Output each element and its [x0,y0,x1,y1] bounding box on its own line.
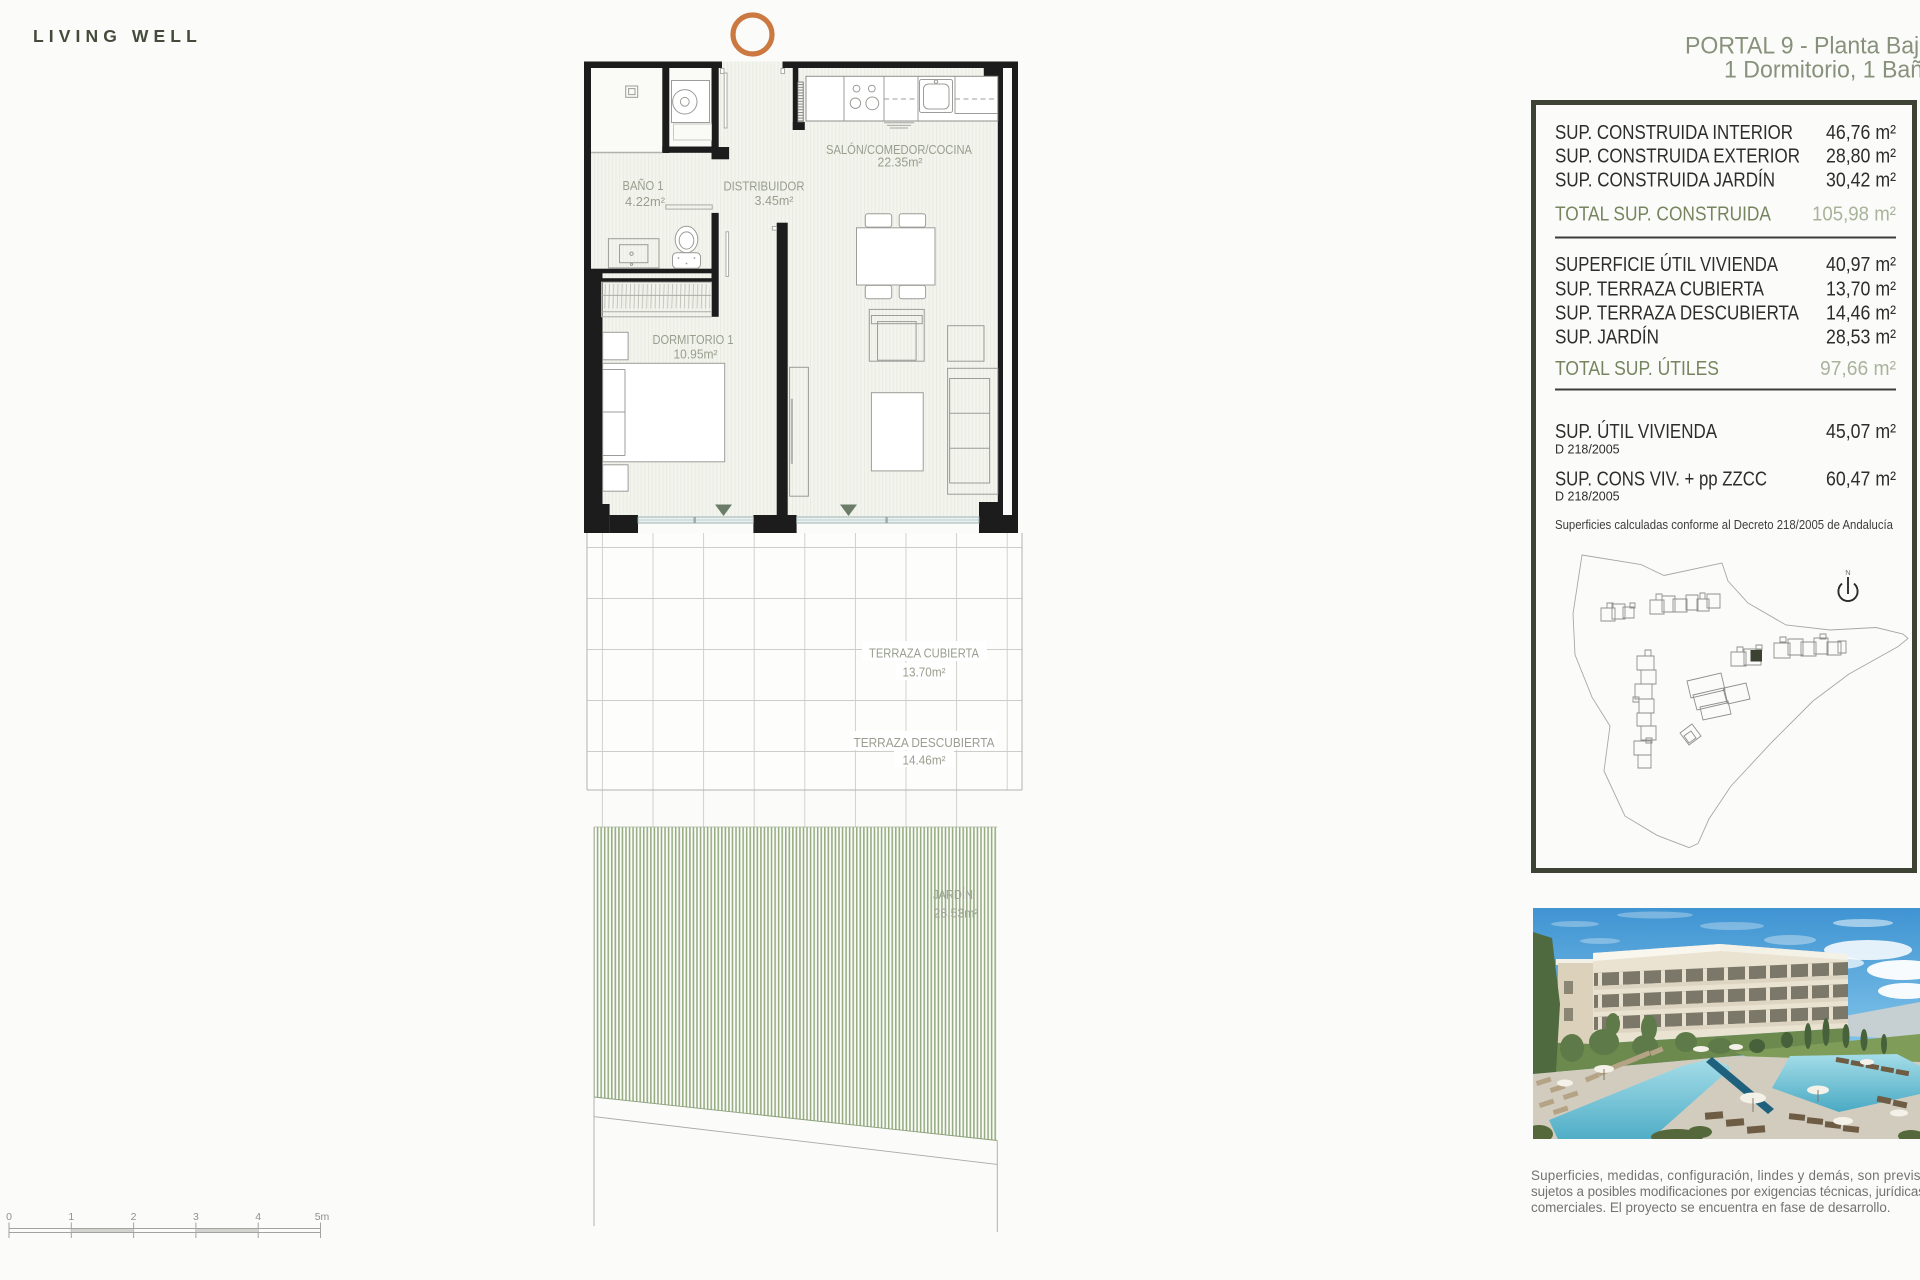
svg-text:22.35m²: 22.35m² [878,156,923,170]
svg-text:5m: 5m [315,1211,330,1223]
svg-text:3: 3 [193,1211,199,1223]
svg-text:SUP. CONSTRUIDA INTERIOR: SUP. CONSTRUIDA INTERIOR [1555,121,1793,144]
svg-text:SUPERFICIE ÚTIL VIVIENDA: SUPERFICIE ÚTIL VIVIENDA [1555,253,1778,276]
svg-text:JARDÍN: JARDÍN [933,887,973,902]
svg-text:SUP. ÚTIL VIVIENDA: SUP. ÚTIL VIVIENDA [1555,420,1717,443]
svg-text:14,46 m²: 14,46 m² [1826,302,1896,325]
svg-text:sujetos a posibles modificacio: sujetos a posibles modificaciones por ex… [1531,1184,1920,1199]
svg-text:0: 0 [6,1211,12,1223]
svg-text:SUP. TERRAZA CUBIERTA: SUP. TERRAZA CUBIERTA [1555,278,1764,301]
svg-text:30,42 m²: 30,42 m² [1826,168,1896,191]
svg-text:TERRAZA DESCUBIERTA: TERRAZA DESCUBIERTA [854,736,996,750]
svg-text:Superficies, medidas, configur: Superficies, medidas, configuración, lin… [1531,1168,1920,1183]
svg-text:D 218/2005: D 218/2005 [1555,490,1620,504]
svg-text:45,07 m²: 45,07 m² [1826,420,1896,443]
svg-text:105,98 m²: 105,98 m² [1812,203,1896,226]
svg-text:D 218/2005: D 218/2005 [1555,443,1620,457]
svg-text:SUP. JARDÍN: SUP. JARDÍN [1555,326,1659,349]
svg-text:28.53m²: 28.53m² [934,907,979,921]
svg-text:13.70m²: 13.70m² [903,666,946,680]
svg-text:10.95m²: 10.95m² [674,348,718,362]
svg-text:4: 4 [255,1211,261,1223]
svg-text:Superficies calculadas conform: Superficies calculadas conforme al Decre… [1555,517,1894,532]
svg-text:13,70 m²: 13,70 m² [1826,278,1896,301]
svg-text:28,80 m²: 28,80 m² [1826,144,1896,167]
svg-text:4.22m²: 4.22m² [625,195,665,209]
svg-text:40,97 m²: 40,97 m² [1826,253,1896,276]
svg-text:PORTAL 9 - Planta Baja: PORTAL 9 - Planta Baja [1685,33,1920,60]
svg-text:46,76 m²: 46,76 m² [1826,121,1896,144]
svg-text:BAÑO 1: BAÑO 1 [623,179,664,193]
svg-text:28,53 m²: 28,53 m² [1826,326,1896,349]
svg-text:3.45m²: 3.45m² [755,194,794,208]
svg-text:N: N [1845,568,1850,577]
svg-text:2: 2 [131,1211,137,1223]
svg-text:60,47 m²: 60,47 m² [1826,468,1896,491]
svg-text:1 Dormitorio, 1 Baño: 1 Dormitorio, 1 Baño [1724,57,1920,84]
svg-text:DORMITORIO 1: DORMITORIO 1 [653,333,734,347]
svg-text:TOTAL SUP. CONSTRUIDA: TOTAL SUP. CONSTRUIDA [1555,203,1771,226]
svg-text:TOTAL SUP. ÚTILES: TOTAL SUP. ÚTILES [1555,357,1719,380]
svg-text:LIVING WELL: LIVING WELL [33,26,202,46]
svg-text:SUP. TERRAZA DESCUBIERTA: SUP. TERRAZA DESCUBIERTA [1555,302,1799,325]
svg-text:DISTRIBUIDOR: DISTRIBUIDOR [724,180,805,194]
svg-text:SUP. CONSTRUIDA EXTERIOR: SUP. CONSTRUIDA EXTERIOR [1555,144,1800,167]
svg-text:97,66 m²: 97,66 m² [1820,357,1896,380]
svg-text:SUP. CONS VIV. + pp ZZCC: SUP. CONS VIV. + pp ZZCC [1555,468,1767,491]
svg-text:SUP. CONSTRUIDA JARDÍN: SUP. CONSTRUIDA JARDÍN [1555,168,1775,191]
svg-text:comerciales. El proyecto se en: comerciales. El proyecto se encuentra en… [1531,1200,1891,1215]
svg-text:1: 1 [68,1211,74,1223]
svg-text:14.46m²: 14.46m² [903,754,946,768]
svg-text:TERRAZA CUBIERTA: TERRAZA CUBIERTA [869,647,980,661]
